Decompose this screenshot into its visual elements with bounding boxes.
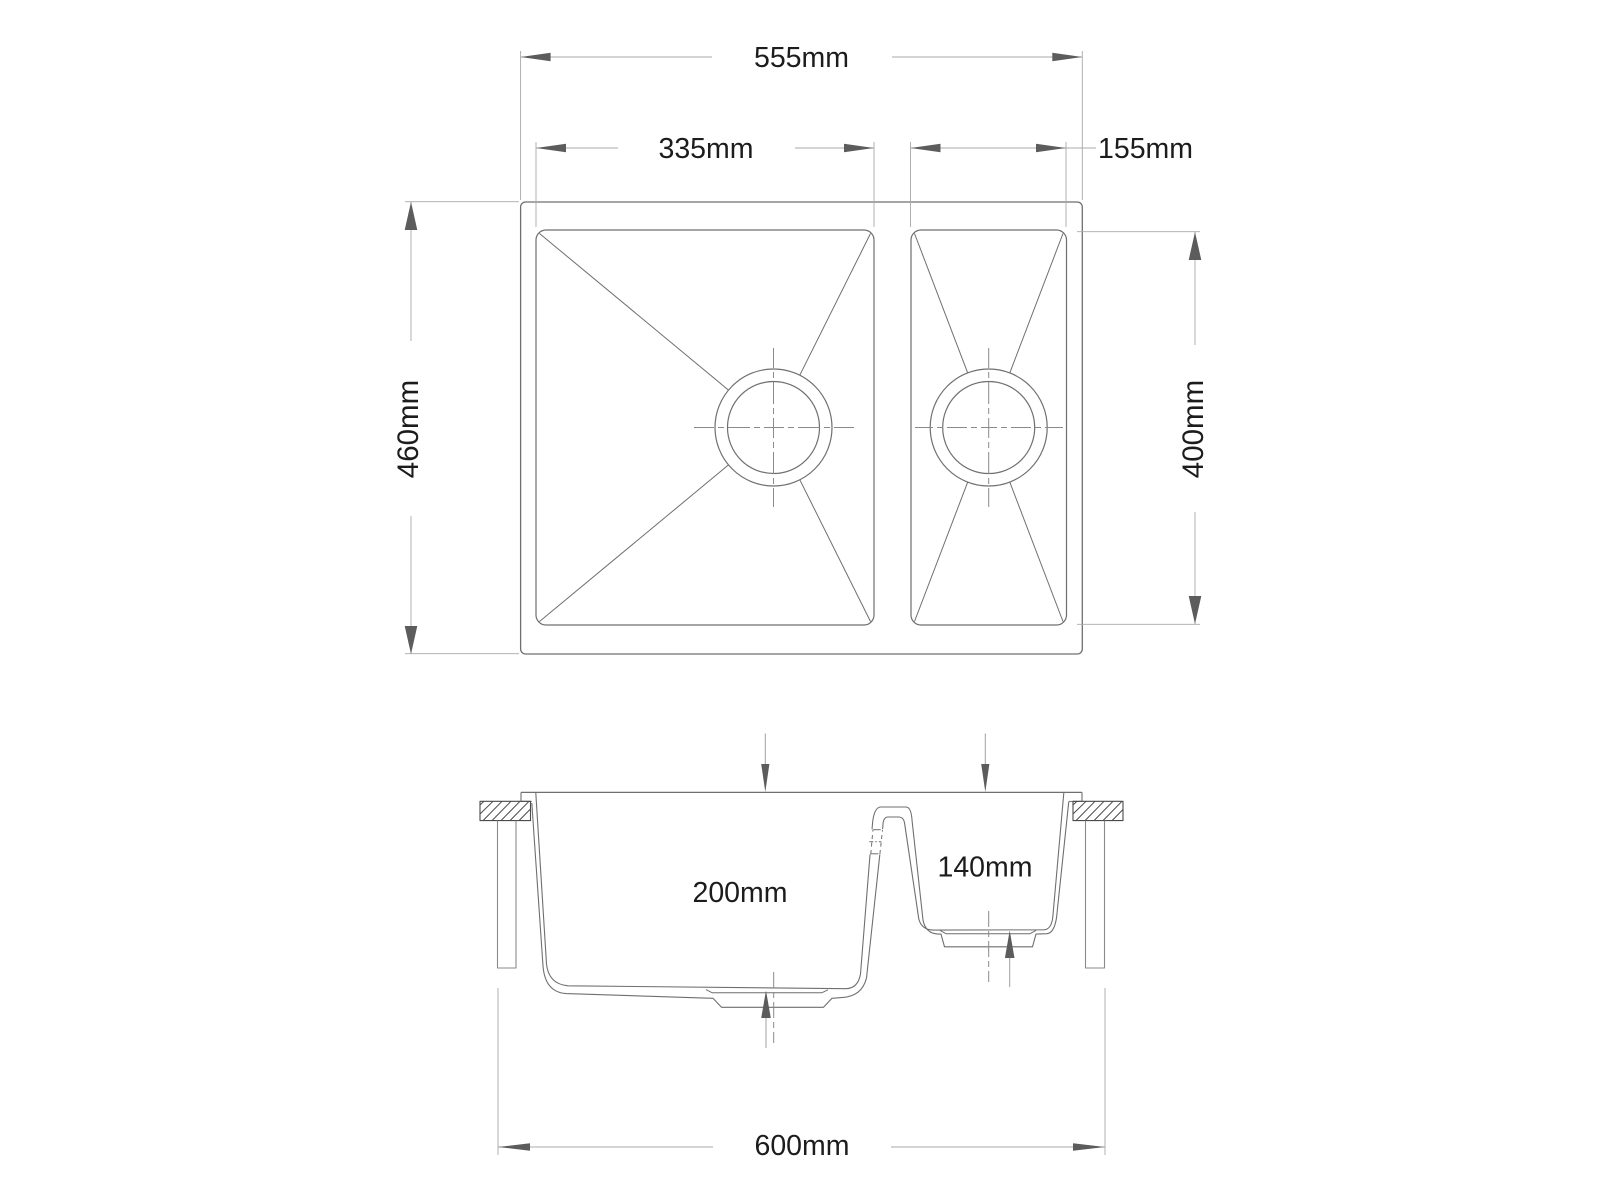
svg-text:155mm: 155mm: [1098, 133, 1193, 165]
svg-text:555mm: 555mm: [754, 42, 849, 74]
svg-text:600mm: 600mm: [754, 1130, 849, 1162]
svg-text:460mm: 460mm: [392, 380, 425, 478]
svg-text:335mm: 335mm: [658, 133, 753, 165]
svg-text:200mm: 200mm: [692, 877, 787, 909]
svg-text:140mm: 140mm: [937, 852, 1032, 884]
svg-text:400mm: 400mm: [1177, 380, 1210, 478]
